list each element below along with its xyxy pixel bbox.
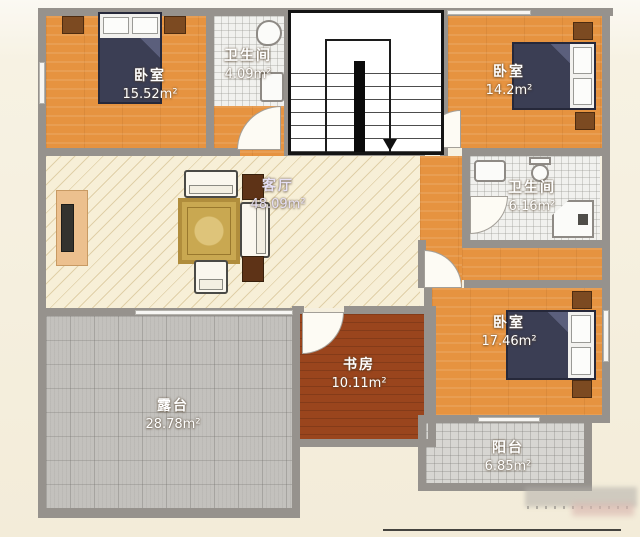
nightstand <box>573 22 593 40</box>
room-label-bedroom-top-right: 卧室 14.2m² <box>464 62 554 101</box>
wall-balcony-left <box>418 415 426 491</box>
room-name: 卧室 <box>105 66 195 86</box>
pillow <box>573 78 592 105</box>
nightstand <box>572 291 592 309</box>
room-area: 28.78m² <box>128 416 218 435</box>
staircase-down-arrow-icon <box>383 139 397 151</box>
room-name: 阳台 <box>463 438 553 458</box>
toilet-top-bath <box>256 20 282 46</box>
rug-pattern <box>187 207 231 255</box>
room-area: 48.09m² <box>230 196 326 215</box>
room-name: 客厅 <box>230 176 326 196</box>
room-name: 卫生间 <box>208 46 288 66</box>
window-bedroom-tl <box>39 62 45 104</box>
room-area: 6.85m² <box>463 458 553 477</box>
wall-mid-c <box>462 148 608 156</box>
room-label-bathroom-top: 卫生间 4.09m² <box>208 46 288 85</box>
room-area: 14.2m² <box>464 82 554 101</box>
room-name: 卧室 <box>464 62 554 82</box>
room-label-bedroom-top-left: 卧室 15.52m² <box>105 66 195 105</box>
room-label-study: 书房 10.11m² <box>314 355 404 394</box>
nightstand <box>572 380 592 398</box>
shower-drain <box>578 214 588 225</box>
corridor-floor-2 <box>462 248 602 280</box>
room-label-bedroom-bottom-right: 卧室 17.46m² <box>464 313 554 352</box>
pillow <box>132 17 158 34</box>
pillow <box>571 347 591 375</box>
pillow <box>573 47 592 74</box>
wall-terrace-bottom <box>38 508 300 518</box>
wall-terrace-study <box>292 306 300 518</box>
sofa-seat <box>189 185 233 194</box>
window-bedroom-br-right <box>603 310 609 362</box>
room-name: 卧室 <box>464 313 554 333</box>
room-area: 17.46m² <box>464 333 554 352</box>
wall-corridor-bath <box>462 150 470 248</box>
wall-bedroom-br-top <box>464 280 608 288</box>
nightstand <box>575 112 595 130</box>
nightstand <box>164 16 186 34</box>
window-bedroom-br-balcony <box>478 417 540 422</box>
room-label-terrace: 露台 28.78m² <box>128 396 218 435</box>
nightstand <box>62 16 84 34</box>
staircase-path-line <box>325 39 391 152</box>
room-name: 露台 <box>128 396 218 416</box>
wall-study-right <box>428 306 436 447</box>
page-bottom-line <box>383 529 621 531</box>
room-name: 书房 <box>314 355 404 375</box>
wall-study-top <box>344 306 436 314</box>
room-area: 15.52m² <box>105 86 195 105</box>
window-bedroom-tr <box>447 10 531 15</box>
pillow <box>571 315 591 343</box>
room-area: 6.16m² <box>487 198 577 217</box>
room-label-living: 客厅 48.09m² <box>230 176 326 215</box>
sofa-seat <box>199 279 223 291</box>
watermark-pink-smudge <box>572 503 634 516</box>
armchair-bottom <box>194 260 228 294</box>
staircase <box>288 10 444 155</box>
wall-balcony-right <box>584 420 592 491</box>
floor-plan-image: 卧室 15.52m² 卫生间 4.09m² 卧室 14.2m² 客厅 48.09… <box>0 0 640 537</box>
wall-bath-right-bottom <box>462 240 608 248</box>
pillow <box>103 17 129 34</box>
room-label-balcony: 阳台 6.85m² <box>463 438 553 477</box>
room-area: 4.09m² <box>208 66 288 85</box>
wall-study-bottom <box>292 439 436 447</box>
room-label-bathroom-right: 卫生间 6.16m² <box>487 178 577 217</box>
window-living-terrace <box>135 310 293 315</box>
tv <box>61 204 74 252</box>
side-table <box>242 256 264 282</box>
room-area: 10.11m² <box>314 375 404 394</box>
room-name: 卫生间 <box>487 178 577 198</box>
